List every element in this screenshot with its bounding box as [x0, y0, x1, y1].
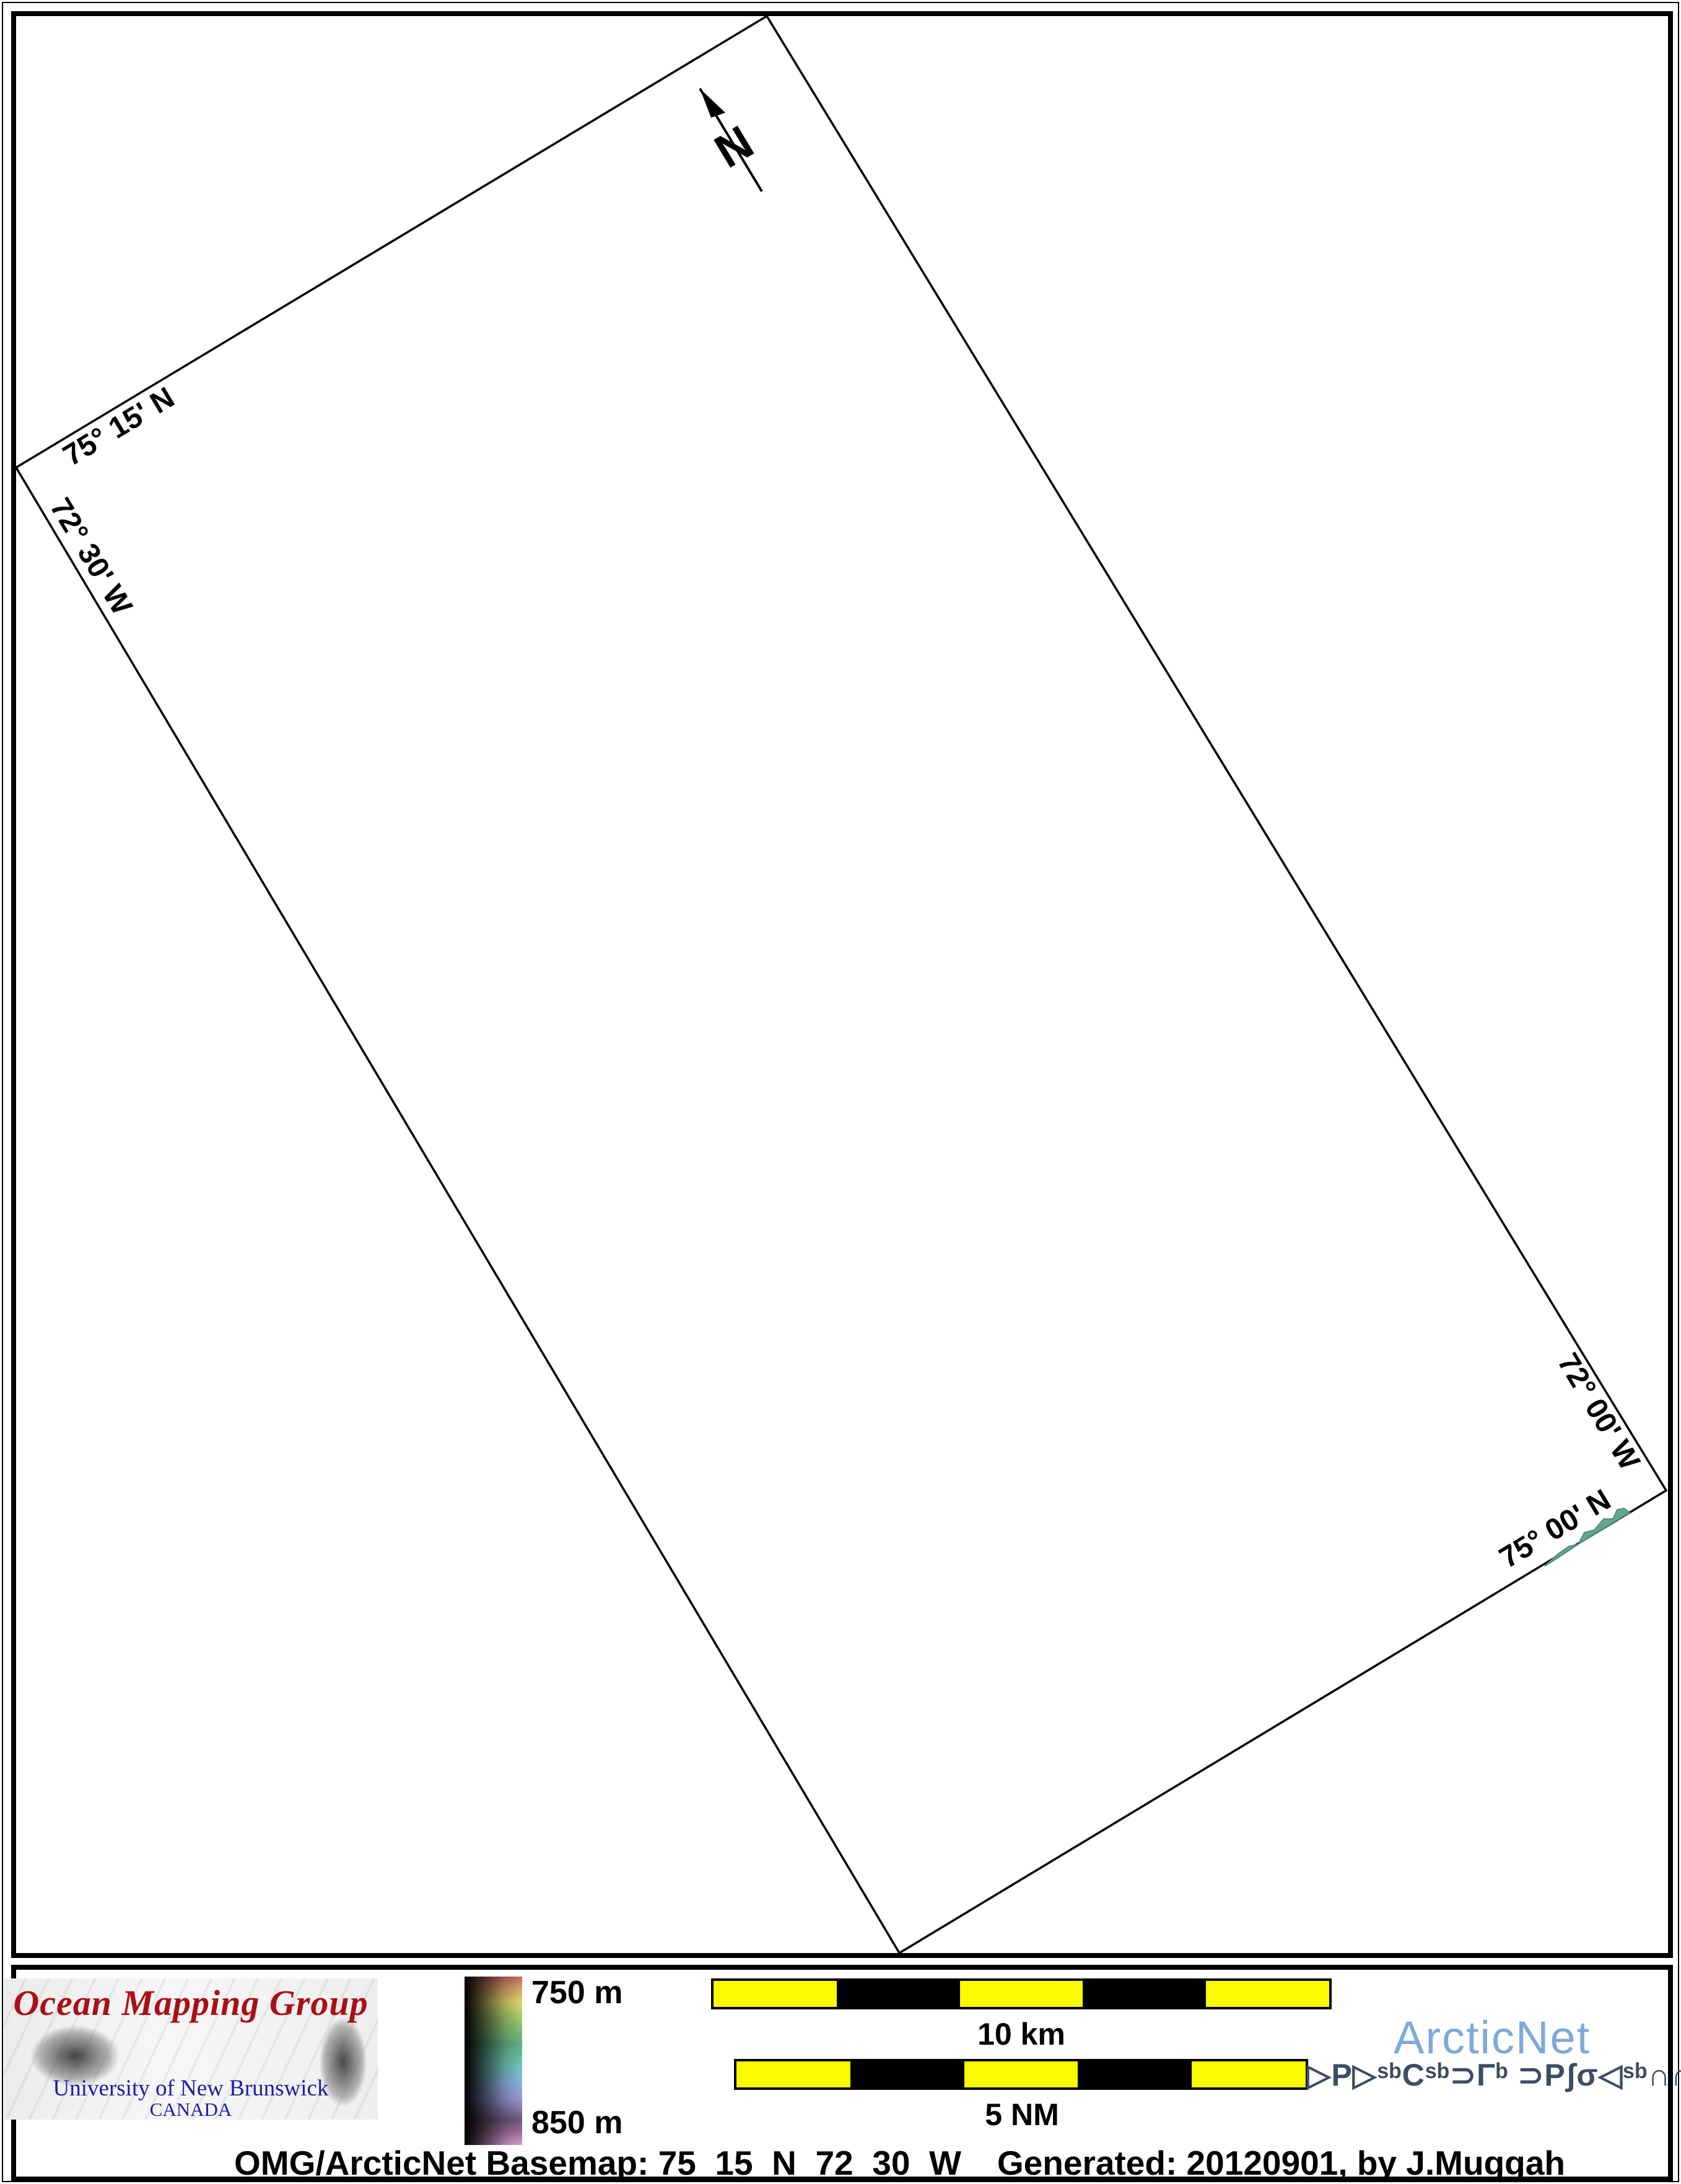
caption-generated: Generated: 20120901, by J.Muggah: [997, 2144, 1565, 2182]
basemap-sheet: 75° 15' N 72° 30' W 72° 00' W 75° 00' N …: [0, 0, 1681, 2184]
scale-bar-segment: [736, 2061, 850, 2087]
scale-bar-segment: [960, 1981, 1083, 2007]
scale-bar-segment: [837, 1981, 960, 2007]
scale-bar-segment: [1078, 2061, 1192, 2087]
scale-bar-segment: [850, 2061, 964, 2087]
omg-logo-title: Ocean Mapping Group: [4, 1982, 378, 2024]
scale-bar-nm: [734, 2059, 1308, 2090]
omg-logo: Ocean Mapping Group University of New Br…: [4, 1978, 378, 2120]
colorbar-max-label: 850 m: [531, 2104, 622, 2141]
scale-bar-km-label: 10 km: [977, 2016, 1065, 2052]
scale-bar-segment: [1192, 2061, 1306, 2087]
omg-logo-country: CANADA: [4, 2099, 378, 2120]
scale-bar-segment: [964, 2061, 1078, 2087]
scale-bar-segment: [714, 1981, 837, 2007]
omg-logo-university: University of New Brunswick: [4, 2075, 378, 2102]
caption-basemap-id: OMG/ArcticNet Basemap: 75_15_N_72_30_W: [234, 2144, 961, 2182]
map-panel-frame: [11, 11, 1673, 1958]
colorbar-min-label: 750 m: [531, 1974, 622, 2011]
arcticnet-logo: ArcticNet: [1394, 2011, 1591, 2064]
scale-bar-segment: [1083, 1981, 1206, 2007]
depth-colorbar: [465, 1977, 522, 2145]
scale-bar-km: [711, 1978, 1332, 2009]
arcticnet-inuktitut-text: ▷P▷ˢᵇCˢᵇ⊃Γᵇ ⊃Pʃσ◁ˢᵇ∩∩̇ᶜ: [1307, 2057, 1681, 2093]
scale-bar-segment: [1206, 1981, 1329, 2007]
sheet-caption: OMG/ArcticNet Basemap: 75_15_N_72_30_WGe…: [234, 2143, 1565, 2183]
scale-bar-nm-label: 5 NM: [985, 2097, 1059, 2133]
